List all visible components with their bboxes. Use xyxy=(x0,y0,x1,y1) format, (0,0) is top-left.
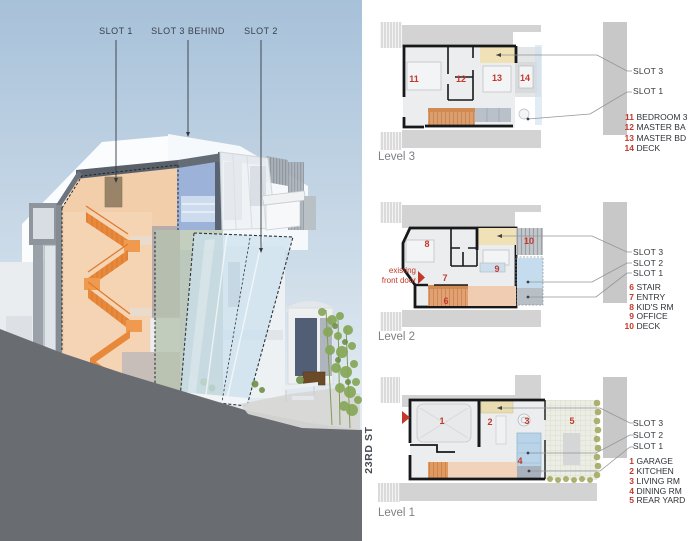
level-title: Level 3 xyxy=(378,151,415,163)
legend-item: 10DECK xyxy=(610,321,660,331)
legend-item: 1GARAGE xyxy=(610,456,673,466)
room-number: 1 xyxy=(439,416,444,426)
render-slot1-label: SLOT 1 xyxy=(90,26,142,37)
slot-ref-label: SLOT 1 xyxy=(633,268,663,278)
legend-item: 3LIVING RM xyxy=(610,476,680,486)
existing-front-door-note: existing front door xyxy=(371,266,416,285)
room-number: 12 xyxy=(456,74,466,84)
room-number: 13 xyxy=(492,73,502,83)
slot-ref-label: SLOT 3 xyxy=(633,418,663,428)
render-slot3-label: SLOT 3 BEHIND xyxy=(150,26,226,37)
slot3-blue-room xyxy=(177,156,223,230)
balcony xyxy=(262,191,316,230)
slot-ref-label: SLOT 2 xyxy=(633,430,663,440)
legend-item: 12MASTER BA xyxy=(610,122,686,132)
kitchen-counter xyxy=(481,401,513,413)
level-title: Level 2 xyxy=(378,331,415,343)
legend-item: 9OFFICE xyxy=(610,311,668,321)
stair-top-door xyxy=(105,177,122,207)
slot-ref-label: SLOT 1 xyxy=(633,441,663,451)
room-number: 14 xyxy=(520,73,530,83)
legend-item: 13MASTER BD xyxy=(610,133,686,143)
level-title: Level 1 xyxy=(378,507,415,519)
sofa xyxy=(475,108,511,122)
legend-item: 6STAIR xyxy=(610,282,661,292)
stair-zone xyxy=(428,462,448,479)
slot-ref-label: SLOT 2 xyxy=(633,258,663,268)
room-number: 6 xyxy=(443,296,448,306)
room-number: 3 xyxy=(524,416,529,426)
room-number: 9 xyxy=(494,264,499,274)
legend-item: 5REAR YARD xyxy=(610,495,685,505)
render-3d-view xyxy=(0,0,365,541)
slot-ref-label: SLOT 1 xyxy=(633,86,663,96)
slot2-zone xyxy=(517,258,543,288)
room-number: 10 xyxy=(524,236,534,246)
room-number: 5 xyxy=(569,416,574,426)
legend-item: 7ENTRY xyxy=(610,292,665,302)
slot3-stair-zone xyxy=(478,228,516,245)
slot-ref-label: SLOT 3 xyxy=(633,66,663,76)
slot1-zone xyxy=(517,288,543,305)
legend-item: 14DECK xyxy=(610,143,660,153)
legend-item: 11BEDROOM 3 xyxy=(610,112,688,122)
slot1-stair-zone xyxy=(428,108,475,126)
rear-addition xyxy=(286,301,334,384)
room-number: 11 xyxy=(409,74,419,84)
room-number: 8 xyxy=(424,239,429,249)
legend-item: 2KITCHEN xyxy=(610,466,674,476)
room-number: 4 xyxy=(517,456,522,466)
rear-yard xyxy=(545,400,601,483)
room-number: 7 xyxy=(442,273,447,283)
room-number: 2 xyxy=(487,417,492,427)
render-slot2-label: SLOT 2 xyxy=(236,26,286,37)
slot-ref-label: SLOT 3 xyxy=(633,247,663,257)
street-name-label: 23RD ST xyxy=(363,421,375,479)
architectural-sheet: SLOT 1 SLOT 3 BEHIND SLOT 2 xyxy=(0,0,700,541)
